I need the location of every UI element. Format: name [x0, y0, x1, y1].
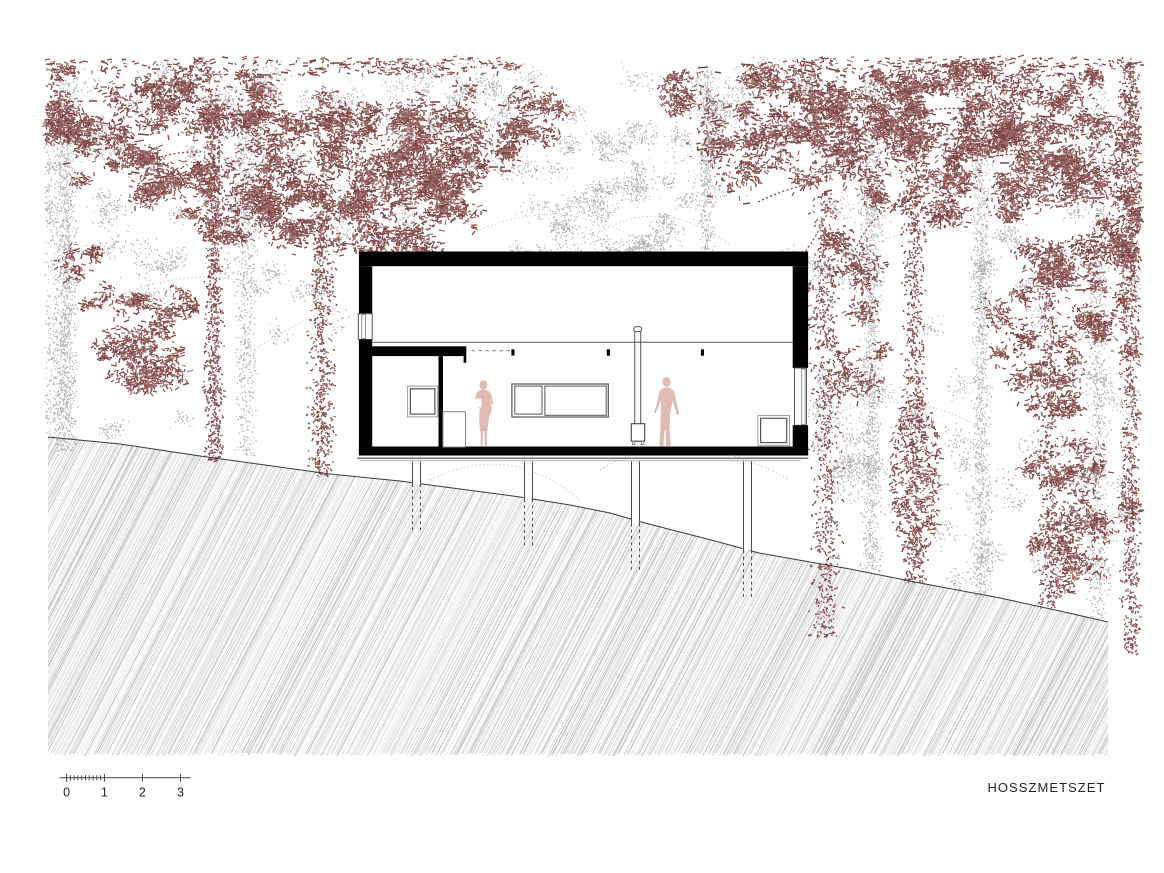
svg-text:2: 2	[139, 786, 146, 800]
svg-text:HOSSZMETSZET: HOSSZMETSZET	[987, 780, 1105, 795]
svg-text:3: 3	[177, 786, 184, 800]
svg-text:1: 1	[101, 786, 108, 800]
svg-text:0: 0	[63, 786, 70, 800]
